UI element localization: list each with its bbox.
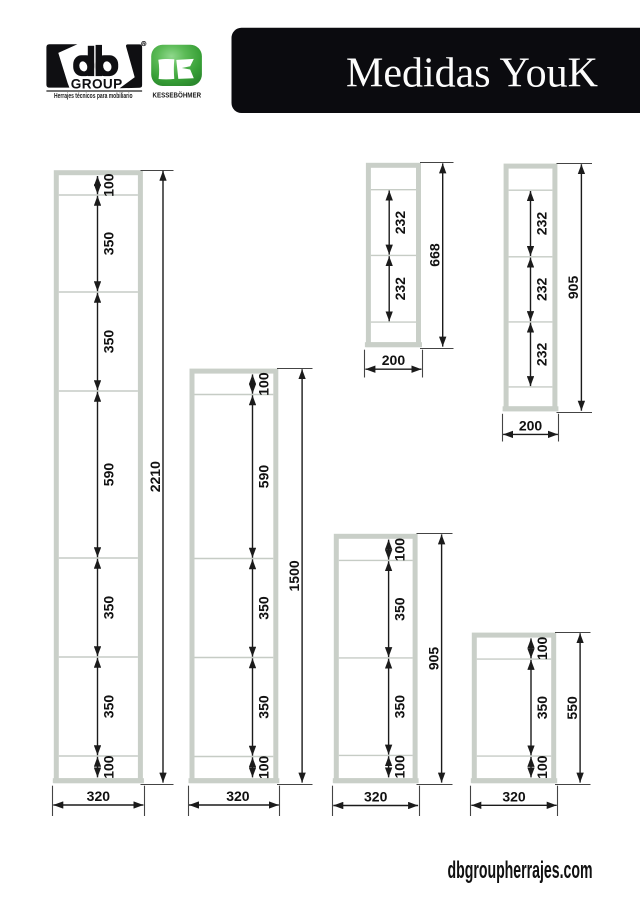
svg-text:232: 232	[534, 343, 550, 367]
svg-text:350: 350	[256, 596, 272, 620]
svg-text:1500: 1500	[286, 560, 302, 591]
svg-text:232: 232	[534, 277, 550, 301]
svg-text:100: 100	[256, 755, 272, 779]
svg-text:668: 668	[427, 243, 443, 267]
svg-text:200: 200	[382, 352, 406, 368]
svg-text:232: 232	[392, 211, 408, 235]
svg-text:100: 100	[256, 372, 272, 396]
svg-text:320: 320	[502, 788, 526, 804]
svg-text:905: 905	[565, 276, 581, 300]
svg-text:200: 200	[519, 417, 543, 433]
svg-text:100: 100	[392, 538, 408, 562]
svg-text:KESSEBÖHMER: KESSEBÖHMER	[153, 91, 202, 100]
svg-text:350: 350	[392, 695, 408, 719]
svg-text:350: 350	[101, 695, 117, 719]
svg-text:100: 100	[534, 636, 550, 660]
svg-text:350: 350	[534, 696, 550, 720]
svg-text:590: 590	[256, 465, 272, 489]
svg-text:350: 350	[101, 330, 117, 354]
svg-text:Medidas YouK: Medidas YouK	[346, 51, 598, 97]
svg-text:232: 232	[534, 212, 550, 236]
svg-text:100: 100	[392, 755, 408, 779]
svg-text:350: 350	[256, 695, 272, 719]
svg-text:100: 100	[534, 755, 550, 779]
svg-text:905: 905	[425, 647, 441, 671]
svg-text:320: 320	[87, 788, 111, 804]
svg-text:350: 350	[392, 597, 408, 621]
svg-text:100: 100	[101, 173, 117, 197]
svg-text:550: 550	[564, 696, 580, 720]
svg-text:232: 232	[392, 277, 408, 301]
svg-text:100: 100	[101, 755, 117, 779]
svg-text:590: 590	[101, 463, 117, 487]
svg-text:320: 320	[226, 788, 250, 804]
svg-text:350: 350	[101, 232, 117, 256]
svg-text:Herrajes técnicos para mobilia: Herrajes técnicos para mobiliario	[54, 93, 133, 100]
svg-text:GROUP: GROUP	[71, 77, 123, 92]
svg-text:320: 320	[364, 789, 388, 805]
svg-text:350: 350	[101, 596, 117, 620]
svg-text:dbgroupherrajes.com: dbgroupherrajes.com	[448, 857, 593, 884]
svg-text:2210: 2210	[147, 461, 163, 492]
